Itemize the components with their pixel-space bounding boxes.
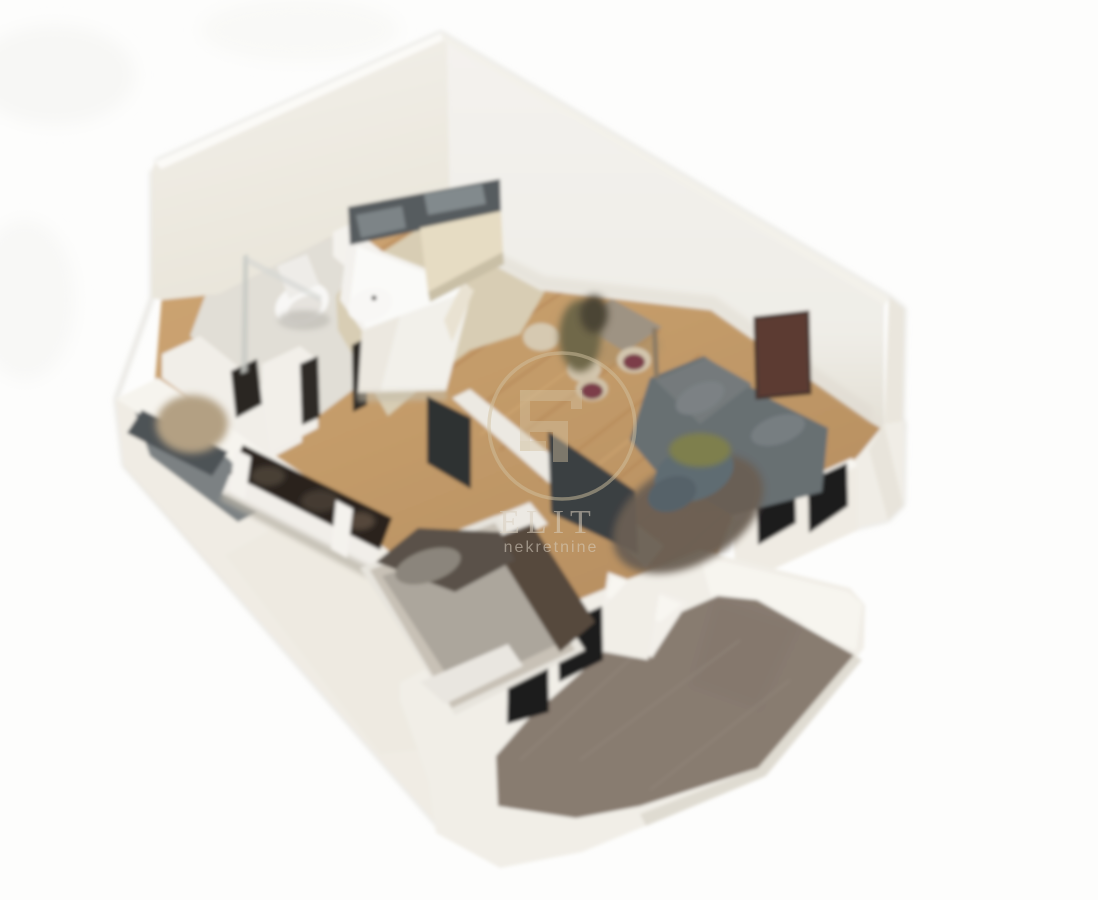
svg-text:ELIT: ELIT: [499, 504, 597, 541]
svg-text:nekretnine: nekretnine: [504, 539, 599, 556]
